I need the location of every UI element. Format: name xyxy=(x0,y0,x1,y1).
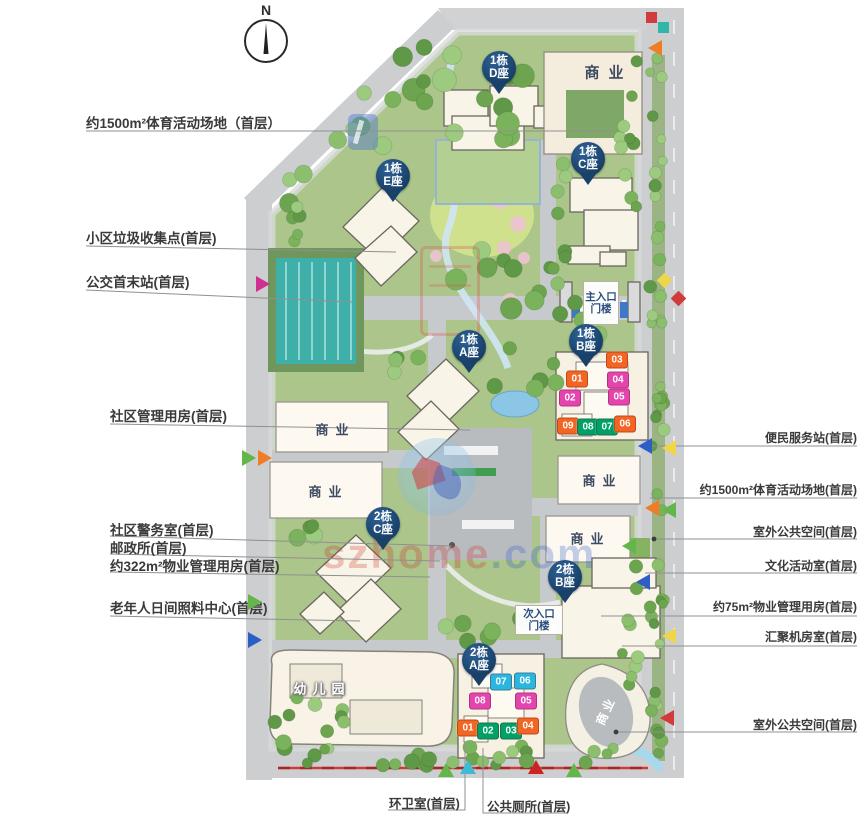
entrance-marker-icon xyxy=(645,500,659,516)
callout-label: 社区警务室(首层) xyxy=(110,519,214,539)
entrance-marker-icon xyxy=(671,291,687,307)
pin-block-label: 2栋 xyxy=(470,647,488,660)
entrance-marker-icon xyxy=(636,574,650,590)
pin-block-label: 2栋 xyxy=(374,511,392,524)
callout-label: 公共厕所(首层) xyxy=(487,796,570,814)
area-label: 商业 xyxy=(575,471,622,490)
pin-block-label: 1栋 xyxy=(579,146,597,159)
unit-number-badge: 02 xyxy=(559,390,581,407)
entrance-marker-icon xyxy=(258,450,272,466)
pin-tower-label: B座 xyxy=(555,577,575,590)
entrance-marker-icon xyxy=(646,12,657,23)
building-pin: 1栋C座 xyxy=(571,142,605,176)
callout-label: 邮政所(首层) xyxy=(110,537,187,557)
building-pin: 1栋D座 xyxy=(482,51,516,85)
unit-number-badge: 06 xyxy=(614,416,636,433)
pin-tower-label: A座 xyxy=(459,347,479,360)
pin-tower-label: E座 xyxy=(383,176,402,189)
pin-block-label: 1栋 xyxy=(490,55,508,68)
callout-label: 老年人日间照料中心(首层) xyxy=(110,597,268,617)
building-pin: 2栋A座 xyxy=(462,643,496,677)
callout-label: 环卫室(首层) xyxy=(389,793,460,812)
entrance-marker-icon xyxy=(460,760,476,774)
entrance-marker-icon xyxy=(638,438,652,454)
entrance-marker-icon xyxy=(657,273,673,289)
unit-number-badge: 01 xyxy=(566,371,588,388)
building-pin: 1栋A座 xyxy=(452,330,486,364)
area-label: 商业 xyxy=(301,482,348,501)
entrance-marker-icon xyxy=(248,632,262,648)
unit-number-badge: 01 xyxy=(457,720,479,737)
callout-label: 室外公共空间(首层) xyxy=(753,716,857,733)
area-label: 幼儿园 xyxy=(287,679,350,698)
callout-label: 便民服务站(首层) xyxy=(765,429,857,446)
callout-label: 约322m²物业管理用房(首层) xyxy=(110,555,280,575)
pin-tower-label: D座 xyxy=(489,68,509,81)
pin-block-label: 2栋 xyxy=(556,564,574,577)
pin-tower-label: A座 xyxy=(469,660,489,673)
pin-block-label: 1栋 xyxy=(384,163,402,176)
building-pin: 1栋B座 xyxy=(569,324,603,358)
entrance-marker-icon xyxy=(248,594,262,610)
unit-number-badge: 03 xyxy=(606,352,628,369)
entrance-marker-icon xyxy=(438,763,454,777)
pin-tower-label: C座 xyxy=(578,159,598,172)
entrance-marker-icon xyxy=(662,440,676,456)
building-pin: 2栋C座 xyxy=(366,507,400,541)
pin-tower-label: B座 xyxy=(576,341,596,354)
entrance-marker-icon xyxy=(566,763,582,777)
gate-label: 主入口门楼 xyxy=(583,281,619,325)
building-pin: 2栋B座 xyxy=(548,560,582,594)
callout-label: 公交首末站(首层) xyxy=(86,271,190,291)
callout-label: 小区垃圾收集点(首层) xyxy=(86,227,217,247)
unit-number-badge: 02 xyxy=(477,723,499,740)
entrance-marker-icon xyxy=(662,628,676,644)
entrance-marker-icon xyxy=(242,450,256,466)
pin-tower-label: C座 xyxy=(373,524,393,537)
unit-number-badge: 04 xyxy=(517,718,539,735)
area-label: 商业 xyxy=(590,693,619,730)
callout-label: 约1500m²体育活动场地（首层） xyxy=(86,112,281,132)
gate-label: 次入口门楼 xyxy=(515,605,563,635)
callout-label: 约75m²物业管理用房(首层) xyxy=(713,598,857,615)
entrance-marker-icon xyxy=(662,502,676,518)
area-label: 商业 xyxy=(563,529,610,548)
unit-number-badge: 09 xyxy=(557,418,579,435)
unit-number-badge: 05 xyxy=(515,693,537,710)
entrance-marker-icon xyxy=(528,760,544,774)
unit-number-badge: 06 xyxy=(514,673,536,690)
unit-number-badge: 05 xyxy=(608,389,630,406)
entrance-marker-icon xyxy=(660,710,674,726)
unit-number-badge: 07 xyxy=(490,674,512,691)
site-plan-canvas: 约1500m²体育活动场地（首层）小区垃圾收集点(首层)公交首末站(首层)社区管… xyxy=(0,0,867,814)
callout-label: 汇聚机房室(首层) xyxy=(765,628,857,645)
entrance-marker-icon xyxy=(658,22,669,33)
unit-number-badge: 08 xyxy=(469,693,491,710)
callout-label: 约1500m²体育活动场地(首层) xyxy=(700,481,857,498)
entrance-marker-icon xyxy=(648,40,662,56)
callout-label: 室外公共空间(首层) xyxy=(753,523,857,540)
entrance-marker-icon xyxy=(256,276,270,292)
entrance-marker-icon xyxy=(622,538,636,554)
callout-label: 社区管理用房(首层) xyxy=(110,405,227,425)
area-label: 商业 xyxy=(575,62,632,83)
area-label: 商业 xyxy=(308,420,355,439)
unit-number-badge: 04 xyxy=(607,372,629,389)
pin-block-label: 1栋 xyxy=(460,334,478,347)
pin-block-label: 1栋 xyxy=(577,328,595,341)
callout-label: 文化活动室(首层) xyxy=(765,557,857,574)
building-pin: 1栋E座 xyxy=(376,159,410,193)
